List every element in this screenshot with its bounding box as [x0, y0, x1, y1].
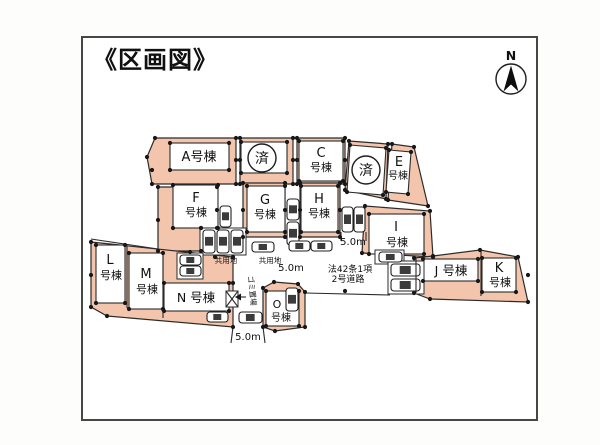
survey-point-dot	[234, 158, 238, 162]
survey-point-dot	[94, 243, 98, 247]
survey-point-dot	[283, 235, 287, 239]
survey-point-dot	[299, 184, 303, 188]
survey-point-dot	[283, 184, 287, 188]
survey-point-dot	[476, 257, 480, 261]
survey-point-dot	[216, 226, 220, 230]
car-icon	[289, 241, 310, 251]
lot-g-label-line2: 号棟	[254, 207, 276, 221]
survey-point-dot	[363, 204, 367, 208]
page-title: 《区画図》	[93, 46, 218, 74]
survey-point-dot	[390, 142, 394, 146]
lot-l-label-line2: 号棟	[100, 268, 122, 282]
lot-f-label-line1: F	[192, 191, 199, 206]
survey-point-dot	[127, 251, 131, 255]
road-law-label-line2: 2号道路	[332, 273, 365, 285]
car-icon	[203, 230, 215, 253]
car-icon	[252, 242, 274, 252]
survey-point-dot	[386, 198, 390, 202]
lot-h-label-line2: 号棟	[308, 206, 330, 220]
survey-point-dot	[478, 248, 482, 252]
car-icon	[180, 255, 201, 265]
survey-point-dot	[89, 305, 93, 309]
survey-point-dot	[264, 289, 268, 293]
car-icon	[342, 207, 353, 232]
survey-point-dot	[238, 158, 242, 162]
survey-point-dot	[336, 184, 340, 188]
survey-point-dot	[199, 226, 203, 230]
survey-point-dot	[514, 256, 518, 260]
survey-point-dot	[241, 235, 245, 239]
survey-point-dot	[273, 329, 277, 333]
survey-point-dot	[406, 192, 410, 196]
lot-o-label-line2: 号棟	[271, 311, 291, 324]
dim-vertical-road: 5.0m	[340, 237, 366, 248]
site-plan-page: 《区画図》 N	[0, 0, 600, 445]
car-icon	[231, 230, 243, 253]
survey-point-dot	[384, 190, 388, 194]
lot-a-label: A号棟	[182, 150, 217, 165]
survey-point-dot	[295, 158, 299, 162]
survey-point-dot	[299, 230, 303, 234]
survey-point-dot	[261, 286, 265, 290]
survey-point-dot	[338, 208, 342, 212]
survey-point-dot	[234, 136, 238, 140]
lot-l-label-line1: L	[106, 253, 114, 268]
car-icon	[220, 206, 231, 227]
lot-h-label-line1: H	[314, 192, 324, 207]
survey-point-dot	[156, 249, 160, 253]
survey-point-dot	[161, 251, 165, 255]
survey-point-dot	[381, 193, 385, 197]
survey-point-dot	[105, 314, 109, 318]
lot-m-label-line2: 号棟	[136, 282, 158, 296]
survey-point-dot	[526, 300, 530, 304]
survey-point-dot	[428, 297, 432, 301]
dim-bottom-road: 5.0m	[235, 332, 261, 343]
survey-point-dot	[188, 250, 192, 254]
survey-point-dot	[215, 208, 219, 212]
survey-point-dot	[409, 150, 413, 154]
survey-point-dot	[421, 257, 425, 261]
lot-n-label: N 号棟	[177, 290, 216, 305]
survey-point-dot	[297, 289, 301, 293]
survey-point-dot	[283, 208, 287, 212]
lot-j-label: J 号棟	[434, 263, 468, 278]
car-icon	[311, 241, 332, 251]
road-law-label-line1: 法42条1項	[328, 263, 372, 275]
survey-point-dot	[476, 279, 480, 283]
survey-point-dot	[514, 290, 518, 294]
survey-point-dot	[303, 325, 307, 329]
lot-c-label-line2: 号棟	[310, 160, 332, 174]
survey-point-dot	[216, 183, 220, 187]
survey-point-dot	[162, 309, 166, 313]
car-icon	[180, 266, 201, 276]
survey-point-dot	[227, 141, 231, 145]
survey-point-dot	[123, 301, 127, 305]
survey-point-dot	[168, 141, 172, 145]
survey-point-dot	[303, 290, 307, 294]
survey-point-dot	[239, 140, 243, 144]
survey-point-dot	[231, 325, 235, 329]
survey-point-dot	[343, 158, 347, 162]
survey-point-dot	[480, 256, 484, 260]
survey-point-dot	[153, 136, 157, 140]
survey-point-dot	[264, 324, 268, 328]
survey-point-dot	[227, 281, 231, 285]
survey-point-dot	[156, 218, 160, 222]
survey-point-dot	[145, 155, 149, 159]
car-icon	[287, 199, 299, 220]
survey-point-dot	[421, 279, 425, 283]
north-label: N	[506, 48, 516, 63]
survey-point-dot	[336, 230, 340, 234]
car-icon	[207, 312, 228, 322]
survey-point-dot	[386, 142, 390, 146]
survey-point-dot	[171, 226, 175, 230]
survey-point-dot	[227, 168, 231, 172]
survey-point-dot	[412, 145, 416, 149]
survey-point-dot	[367, 252, 371, 256]
survey-point-dot	[343, 289, 347, 293]
survey-point-dot	[231, 281, 235, 285]
survey-point-dot	[89, 273, 93, 277]
survey-point-dot	[341, 139, 345, 143]
common-area-label-left: 共用地	[215, 255, 238, 265]
survey-point-dot	[426, 204, 430, 208]
lot-k-label-line1: K	[495, 261, 504, 276]
lot-i-label-line1: I	[394, 220, 398, 235]
survey-point-dot	[297, 139, 301, 143]
survey-point-dot	[162, 281, 166, 285]
lot-g-label-line1: G	[260, 193, 270, 208]
car-icon	[379, 252, 402, 262]
survey-point-dot	[431, 254, 435, 258]
car-icon	[354, 207, 365, 232]
survey-point-dot	[127, 307, 131, 311]
survey-point-dot	[298, 208, 302, 212]
site-plan-canvas: 《区画図》 N	[0, 0, 600, 445]
survey-point-dot	[428, 209, 432, 213]
survey-point-dot	[387, 148, 391, 152]
survey-point-dot	[291, 136, 295, 140]
lot-e-label-line1: E	[395, 155, 403, 170]
survey-point-dot	[298, 235, 302, 239]
survey-point-dot	[199, 249, 203, 253]
survey-point-dot	[150, 182, 154, 186]
car-icon	[286, 288, 298, 311]
lot-o-label-line1: O	[273, 298, 282, 311]
survey-point-dot	[89, 240, 93, 244]
survey-point-dot	[168, 168, 172, 172]
survey-point-dot	[285, 140, 289, 144]
survey-point-dot	[412, 291, 416, 295]
survey-point-dot	[227, 309, 231, 313]
survey-point-dot	[283, 230, 287, 234]
survey-point-dot	[422, 252, 426, 256]
survey-point-dot	[123, 243, 127, 247]
lot-f-label-line2: 号棟	[185, 205, 207, 219]
survey-point-dot	[297, 324, 301, 328]
survey-point-dot	[245, 184, 249, 188]
survey-point-dot	[347, 139, 351, 143]
survey-point-dot	[526, 273, 530, 277]
lot-c-label-line1: C	[316, 146, 325, 161]
lot-b-sold-label: 済	[255, 151, 269, 167]
survey-point-dot	[241, 208, 245, 212]
survey-point-dot	[291, 182, 295, 186]
survey-point-dot	[367, 212, 371, 216]
survey-point-dot	[272, 280, 276, 284]
survey-point-dot	[241, 181, 245, 185]
dim-diagonal-road: 5.0m	[278, 263, 304, 274]
lot-d-sold-label: 済	[359, 163, 373, 179]
survey-point-dot	[171, 183, 175, 187]
car-icon	[217, 230, 229, 253]
survey-point-dot	[150, 168, 154, 172]
survey-point-dot	[297, 179, 301, 183]
survey-point-dot	[245, 230, 249, 234]
lot-e-label-line2: 号棟	[388, 169, 408, 182]
survey-point-dot	[291, 158, 295, 162]
survey-point-dot	[285, 171, 289, 175]
survey-point-dot	[412, 256, 416, 260]
survey-point-dot	[234, 182, 238, 186]
survey-point-dot	[94, 301, 98, 305]
survey-point-dot	[348, 143, 352, 147]
survey-point-dot	[238, 136, 242, 140]
survey-point-dot	[239, 171, 243, 175]
survey-point-dot	[341, 179, 345, 183]
lot-k-label-line2: 号棟	[489, 275, 511, 289]
survey-point-dot	[296, 282, 300, 286]
lot-i-label-line2: 号棟	[386, 235, 408, 249]
survey-point-dot	[422, 212, 426, 216]
lot-m-label-line1: M	[140, 267, 151, 282]
survey-point-dot	[156, 185, 160, 189]
survey-point-dot	[360, 251, 364, 255]
survey-point-dot	[345, 190, 349, 194]
survey-point-dot	[480, 290, 484, 294]
car-icon	[239, 312, 262, 323]
